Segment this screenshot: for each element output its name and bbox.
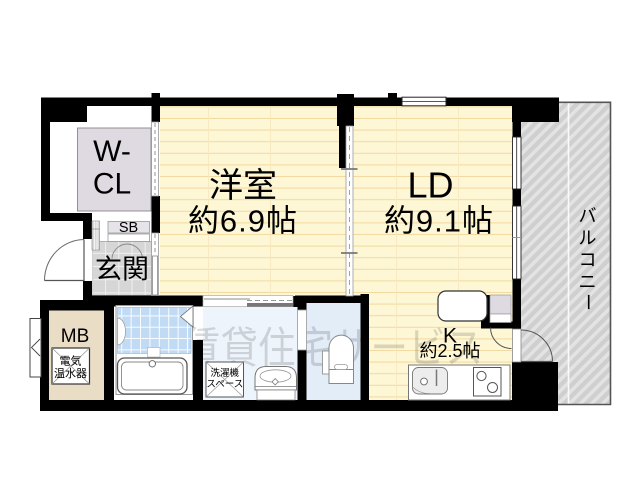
svg-text:バ: バ — [579, 206, 597, 226]
svg-text:電気: 電気 — [60, 354, 82, 368]
svg-text:ー: ー — [578, 293, 598, 311]
svg-text:約2.5帖: 約2.5帖 — [419, 341, 480, 361]
svg-text:スペース: スペース — [206, 379, 243, 390]
svg-text:SB: SB — [119, 220, 138, 236]
svg-text:約6.9帖: 約6.9帖 — [188, 204, 298, 239]
svg-text:玄関: 玄関 — [95, 255, 149, 285]
svg-text:LD: LD — [407, 165, 453, 206]
svg-text:約9.1帖: 約9.1帖 — [384, 204, 494, 239]
svg-text:CL: CL — [93, 168, 131, 201]
svg-text:洗濯機: 洗濯機 — [211, 367, 240, 379]
svg-text:ニ: ニ — [579, 272, 597, 292]
svg-text:コ: コ — [579, 250, 597, 270]
svg-text:洋室: 洋室 — [209, 167, 277, 205]
svg-text:ル: ル — [579, 228, 597, 248]
svg-text:温水器: 温水器 — [54, 367, 87, 380]
svg-text:W-: W- — [93, 135, 131, 168]
svg-text:MB: MB — [61, 326, 90, 347]
